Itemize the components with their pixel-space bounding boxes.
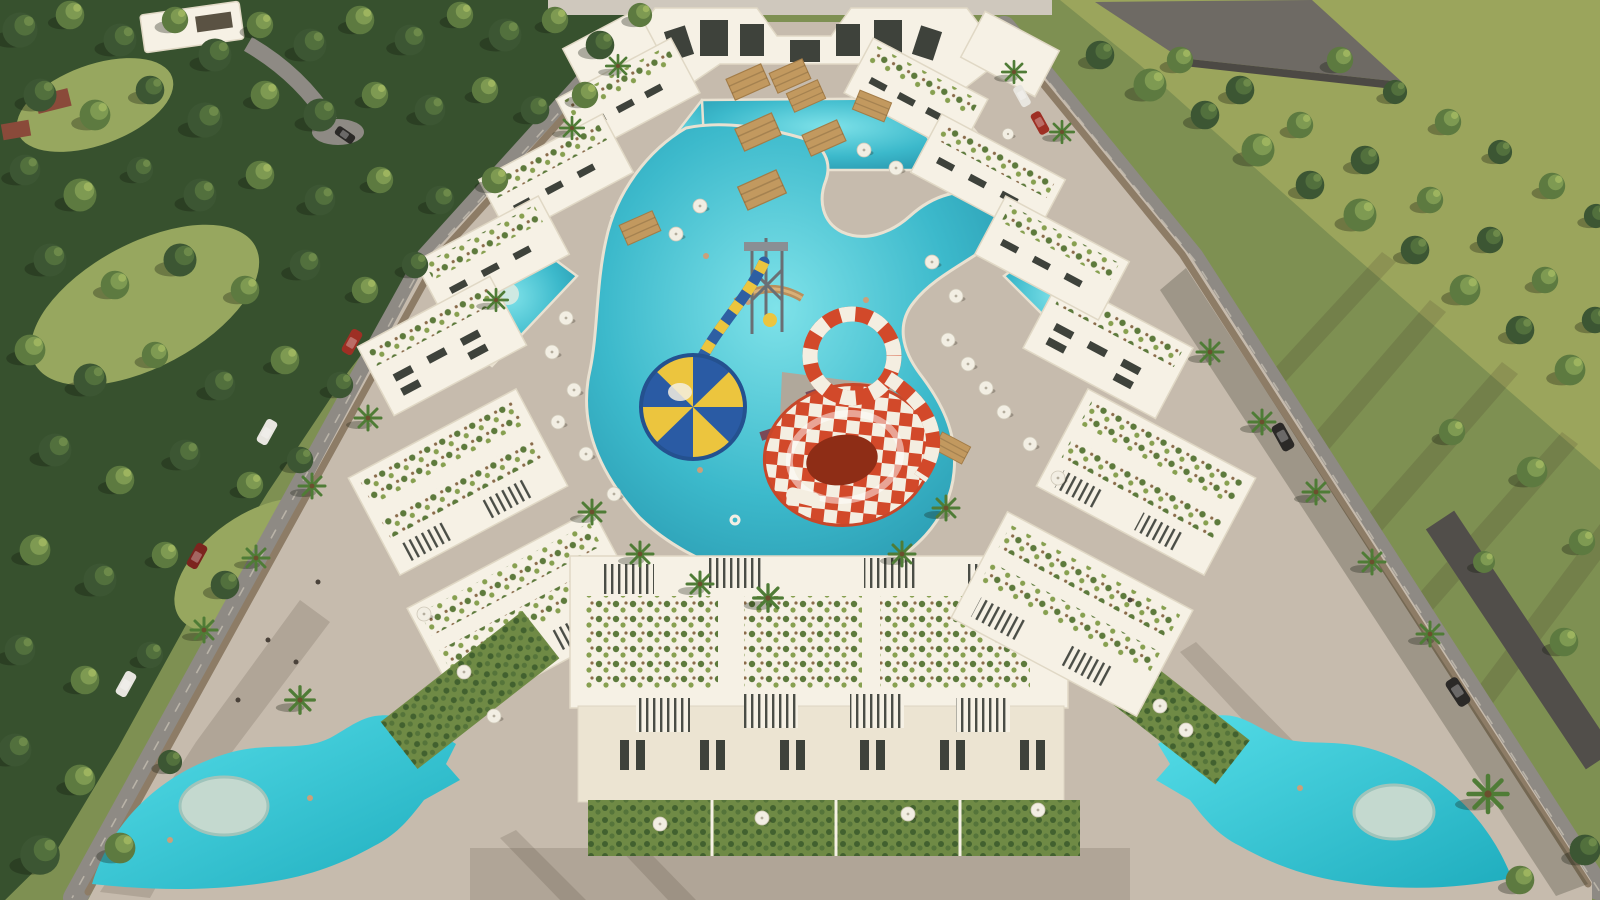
scene-canvas	[0, 0, 1600, 900]
balloon-funnel-slide	[641, 355, 745, 459]
top-pavement	[548, 0, 1052, 15]
resort-aerial-render	[0, 0, 1600, 900]
